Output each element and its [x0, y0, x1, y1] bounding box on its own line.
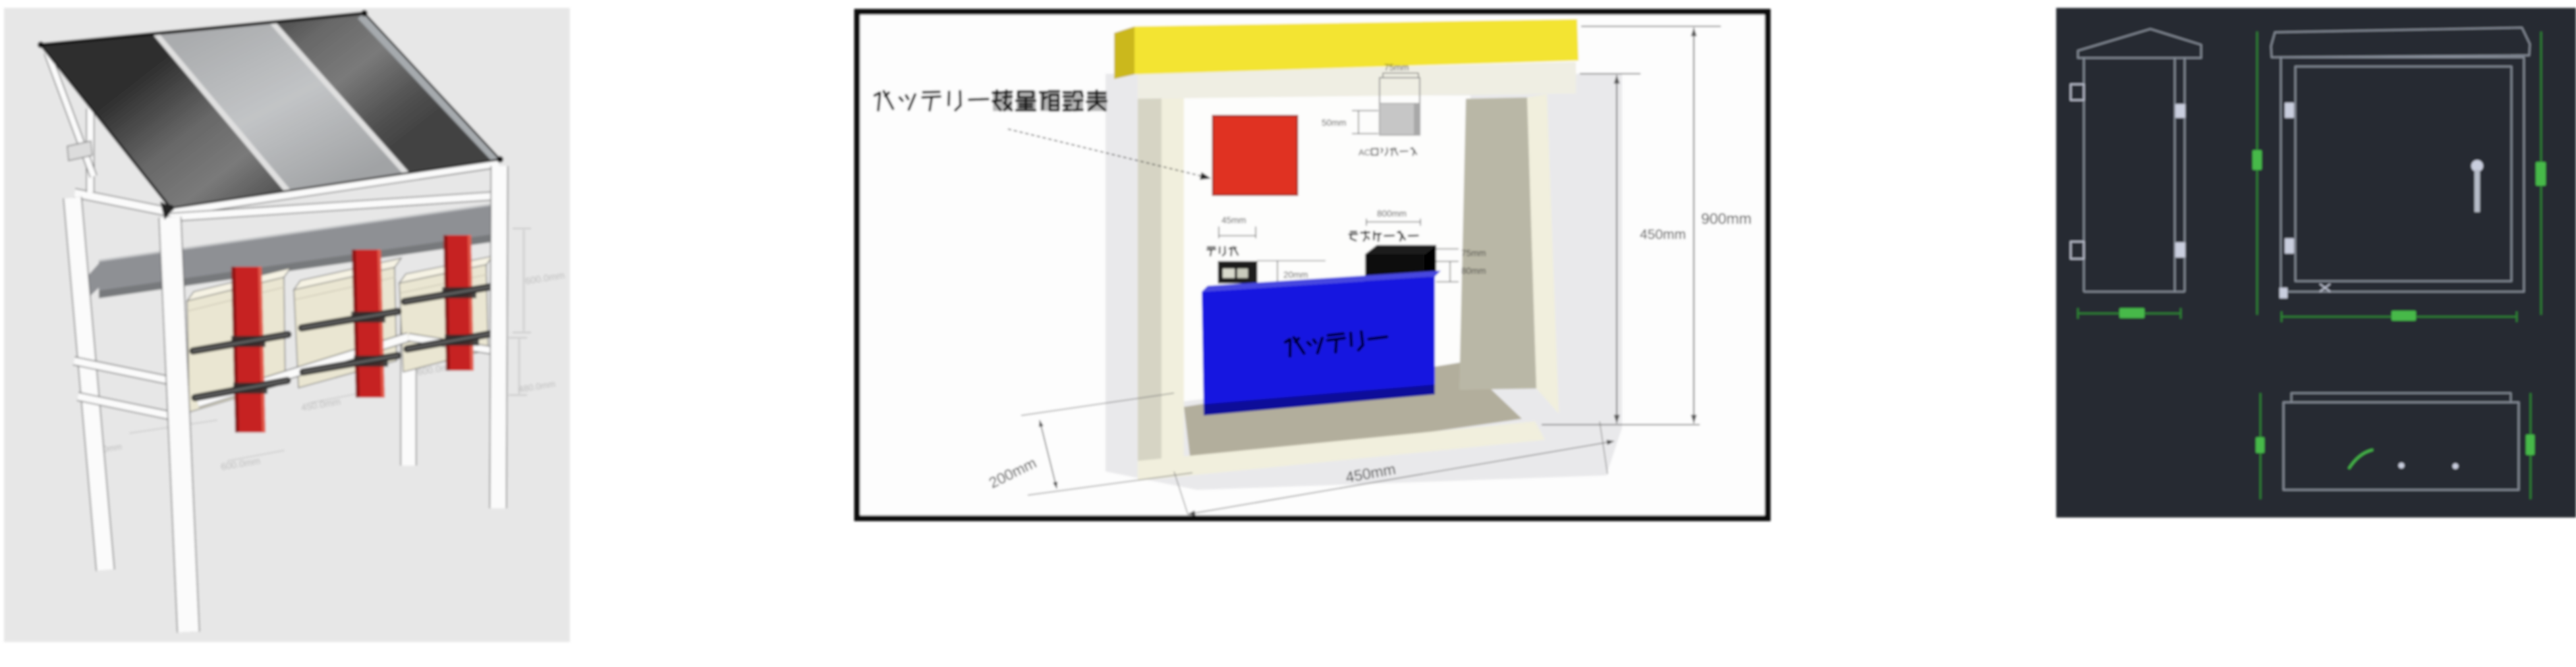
svg-text:AC: AC: [1358, 147, 1370, 157]
svg-text:50mm: 50mm: [1322, 118, 1347, 128]
svg-text:75mm: 75mm: [1384, 63, 1409, 72]
svg-text:80mm: 80mm: [1461, 266, 1486, 276]
svg-text:450mm: 450mm: [1640, 227, 1686, 242]
svg-text:75mm: 75mm: [1461, 248, 1486, 258]
svg-text:45mm: 45mm: [1221, 215, 1246, 225]
svg-text:800mm: 800mm: [1377, 209, 1407, 219]
svg-text:900mm: 900mm: [1701, 210, 1752, 227]
svg-text:20mm: 20mm: [1283, 270, 1308, 280]
